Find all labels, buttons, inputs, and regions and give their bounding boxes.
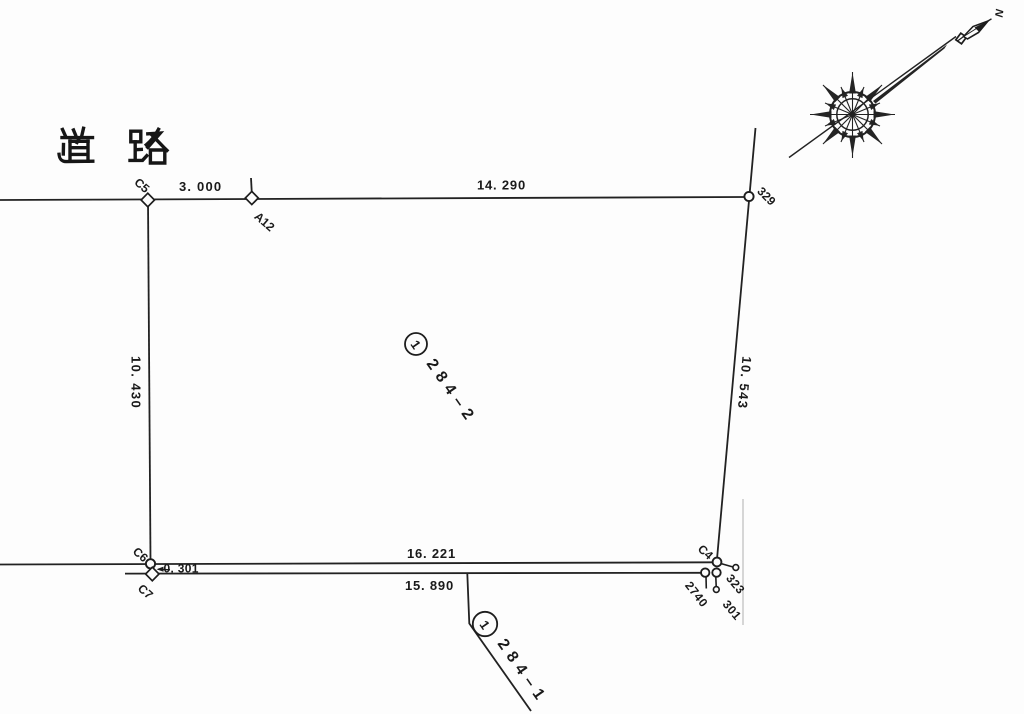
svg-text:15. 890: 15. 890 bbox=[405, 578, 454, 593]
svg-text:0. 301: 0. 301 bbox=[164, 562, 199, 576]
svg-text:3. 000: 3. 000 bbox=[179, 179, 222, 194]
svg-text:301: 301 bbox=[720, 597, 745, 622]
svg-text:10. 543: 10. 543 bbox=[735, 356, 755, 410]
svg-text:16. 221: 16. 221 bbox=[407, 546, 456, 561]
svg-text:10. 430: 10. 430 bbox=[129, 356, 144, 409]
svg-text:C7: C7 bbox=[135, 581, 156, 602]
svg-text:284–2: 284–2 bbox=[423, 356, 481, 428]
svg-text:1: 1 bbox=[408, 337, 424, 352]
svg-text:323: 323 bbox=[723, 571, 748, 596]
svg-text:1: 1 bbox=[477, 618, 493, 633]
svg-text:329: 329 bbox=[754, 184, 778, 208]
svg-text:284–1: 284–1 bbox=[494, 636, 552, 708]
svg-text:N: N bbox=[992, 8, 1005, 18]
svg-text:14. 290: 14. 290 bbox=[477, 178, 526, 193]
svg-text:C5: C5 bbox=[132, 175, 153, 196]
svg-text:A12: A12 bbox=[252, 209, 278, 234]
